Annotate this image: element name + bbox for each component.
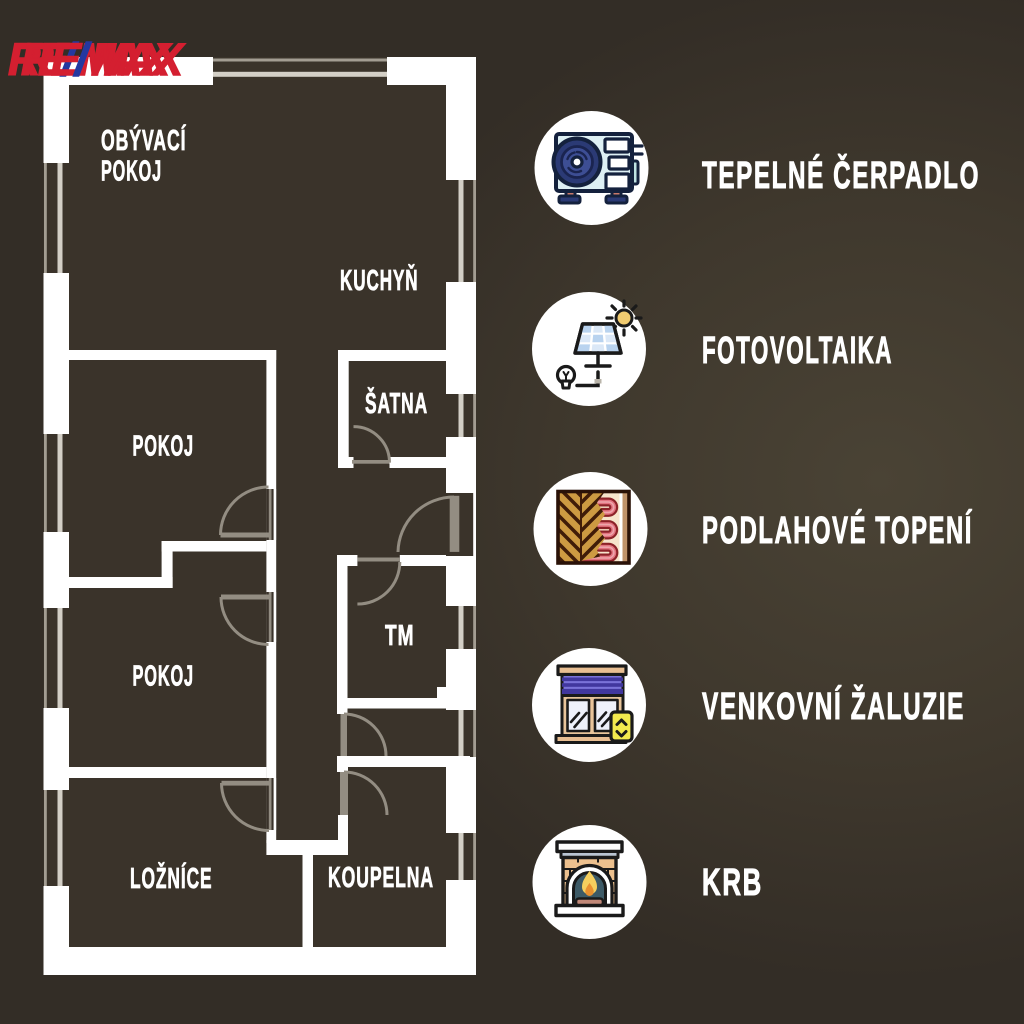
svg-text:KUCHYŇ: KUCHYŇ [340, 263, 419, 297]
svg-text:VENKOVNÍ ŽALUZIE: VENKOVNÍ ŽALUZIE [702, 684, 965, 728]
svg-text:ŠATNA: ŠATNA [365, 386, 428, 420]
svg-text:POKOJ: POKOJ [133, 661, 195, 693]
svg-text:PODLAHOVÉ TOPENÍ: PODLAHOVÉ TOPENÍ [702, 508, 973, 552]
svg-text:POKOJ: POKOJ [133, 431, 195, 463]
svg-text:KOUPELNA: KOUPELNA [328, 862, 434, 894]
svg-text:TM: TM [385, 620, 415, 652]
svg-text:OBÝVACÍ: OBÝVACÍ [101, 123, 187, 157]
svg-text:RE/MAX: RE/MAX [21, 34, 186, 85]
svg-text:FOTOVOLTAIKA: FOTOVOLTAIKA [702, 330, 893, 372]
svg-text:KRB: KRB [702, 862, 763, 904]
svg-text:TEPELNÉ ČERPADLO: TEPELNÉ ČERPADLO [702, 152, 980, 197]
svg-text:LOŽNÍCE: LOŽNÍCE [130, 861, 213, 895]
svg-text:POKOJ: POKOJ [101, 156, 162, 188]
